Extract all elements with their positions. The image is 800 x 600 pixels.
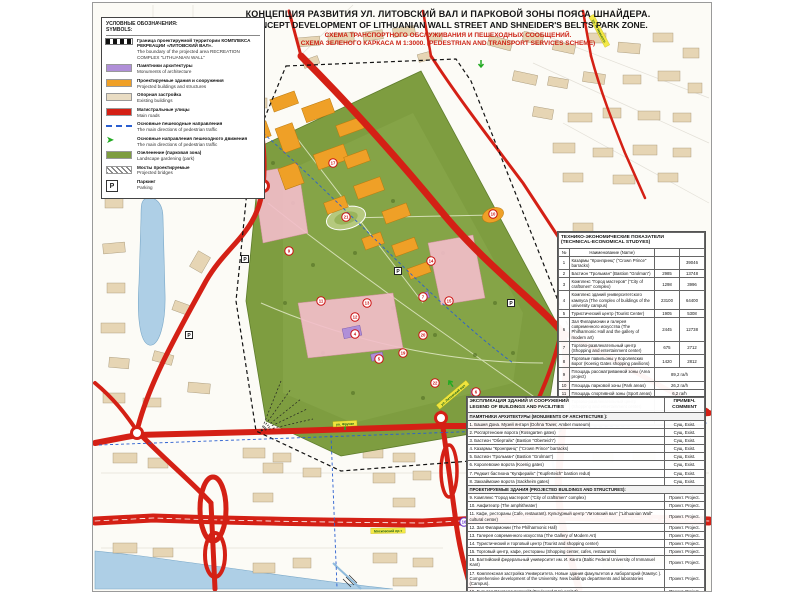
exp-table-row: 10. Амфитеатр (The amphitheater)Проект. … [468,502,705,510]
planning-poster: PPPP ул. Фрунзеул. Литовский валул. А. Н… [0,0,800,600]
exp-table-row: 13. Галерея современного искусства (The … [468,531,705,539]
tech-table-row: 7Торгово-развлекательный центр (Shopping… [559,341,705,354]
legend-header-ru: УСЛОВНЫЕ ОБОЗНАЧЕНИЯ: [106,21,178,27]
exp-table-row: 4. Казармы "Кронпринц" ("Crown Prince" b… [468,445,705,453]
exp-table-row: 17. Комплексная застройка Университета. … [468,569,705,587]
tech-table-row: 5Туристический центр (Tourist Center)190… [559,309,705,317]
legend-item: Мосты проектируемыеProjected bridges [106,165,260,176]
building [109,357,130,369]
legend-swatch-hatch-icon [106,166,132,174]
svg-text:12: 12 [353,315,358,320]
exp-table-row: 19. Бульвар "Университетский" (Boulevard… [468,588,705,592]
svg-text:22: 22 [433,381,438,386]
legend-item-label: Граница проектируемой территории КОМПЛЕК… [137,38,260,61]
tech-table-row: 3Комплекс "Город мастеров" ("City of cra… [559,278,705,291]
building [623,75,641,84]
building [683,48,699,58]
legend-box: УСЛОВНЫЕ ОБОЗНАЧЕНИЯ: SYMBOLS: Граница п… [101,17,265,199]
legend-item-label: ПаркингParking [137,179,155,190]
legend-item: ➤Основные направления пешеходного движен… [106,136,260,147]
exp-table-row: 8. Закхаймские ворота (Sackheim gates)Су… [468,477,705,485]
map-marker: 10 [489,210,497,218]
building [638,111,660,120]
legend-items: Граница проектируемой территории КОМПЛЕК… [106,38,260,193]
exp-table-title: ЭКСПЛИКАЦИЯ ЗДАНИЙ И СООРУЖЕНИЙLEGEND OF… [468,398,665,413]
parking-icon: P [508,300,515,308]
map-marker: 6 [472,388,480,396]
exp-section-row: ПАМЯТНИКИ АРХИТЕКТУРЫ (MONUMENTS OF ARCH… [468,412,705,420]
tech-table-row: 2Бастион "Грольман" (Bastion "Grolman")2… [559,269,705,277]
svg-text:14: 14 [429,259,434,264]
exp-table-row: 5. Бастион "Грольман" (Bastion "Grolman"… [468,453,705,461]
exp-table-row: 14. Туристический и торговый центр (Tour… [468,540,705,548]
subtitle-ru: СХЕМА ТРАНСПОРТНОГО ОБСЛУЖИВАНИЯ И ПЕШЕХ… [233,32,663,39]
building [673,148,691,157]
map-marker: 13 [363,299,371,307]
svg-text:11: 11 [319,299,324,304]
building [633,145,657,155]
map-marker: 9 [285,247,293,255]
exp-section-row: ПРОЕКТИРУЕМЫЕ ЗДАНИЯ (PROJECTED BUILDING… [468,485,705,493]
legend-item-label: Основные направления пешеходного движени… [137,136,247,147]
exp-table-row: 15. Торговый центр, кафе, рестораны (Sho… [468,548,705,556]
building [688,83,702,93]
legend-item: Магистральные улицыMain roads [106,107,260,118]
exp-table-row: 6. Королевские ворота (Koenig gates)Сущ.… [468,461,705,469]
legend-swatch-color-icon [106,151,132,159]
exp-table-row: 3. Бастион "Обертайх" (Bastion "Oberteic… [468,436,705,444]
exp-table-row: 11. Кафе, рестораны (Cafe, restaurant). … [468,510,705,523]
tech-table-row: 6Зал Филармонии и галерея современного и… [559,318,705,342]
building [303,468,321,477]
building [153,548,173,557]
legend-item-label: Памятники архитектурыMonuments of archit… [137,63,193,74]
building [393,453,415,462]
exp-table-header: ЭКСПЛИКАЦИЯ ЗДАНИЙ И СООРУЖЕНИЙLEGEND OF… [468,398,705,413]
parking-icon: P [186,332,193,340]
map-marker: 19 [399,349,407,357]
exp-table-row: 12. Зал Филармонии (The Philharmonic Hal… [468,523,705,531]
legend-swatch-color-icon [106,108,132,116]
svg-text:21: 21 [344,215,349,220]
building [107,283,125,293]
legend-swatch-parking-icon: P [106,180,118,192]
building [373,473,395,483]
building [103,242,126,254]
building [393,578,417,586]
street-label: ул. Фрунзе [333,420,357,427]
svg-text:19: 19 [401,351,406,356]
exp-table-row: 16. Балтийский федеральный университет и… [468,556,705,569]
legend-item-label: Проектируемые здания и сооруженияProject… [137,78,224,89]
map-marker: 17 [329,159,337,167]
tech-table-header: № Наименование (Name) [559,248,705,256]
legend-item: Опорная застройкаExisting buildings [106,92,260,103]
legend-swatch-arrow-icon: ➤ [106,137,132,145]
parking-icon: P [242,256,249,264]
tech-table-row: 10Площадь парковой зоны (Park areas)26,2… [559,381,705,389]
svg-text:10: 10 [491,212,496,217]
building [113,453,137,463]
exp-table-row: 7. Редюит бастиона "Купферайх" ("Kupfert… [468,469,705,477]
svg-text:20: 20 [421,333,426,338]
building [243,448,265,458]
legend-item: Основные пешеходные направленияThe main … [106,121,260,132]
parking-icon: P [395,268,402,276]
legend-swatch-bluedash-icon [106,125,132,127]
map-marker: 14 [427,257,435,265]
map-marker: 22 [431,379,439,387]
building [253,493,273,502]
legend-swatch-color-icon [106,93,132,101]
map-marker: 15 [445,297,453,305]
building [563,173,583,182]
lake [138,198,165,345]
legend-item: Памятники архитектурыMonuments of archit… [106,63,260,74]
legend-swatch-color-icon [106,64,132,72]
building [373,553,397,563]
legend-item: Проектируемые здания и сооруженияProject… [106,78,260,89]
building [101,323,125,333]
legend-swatch-color-icon [106,79,132,87]
title-en: CONCEPT DEVELOPMENT OF LITHUANIAN WALL S… [233,20,663,30]
legend-swatch-boundary-icon [106,39,132,44]
title-ru: КОНЦЕПЦИЯ РАЗВИТИЯ УЛ. ЛИТОВСКИЙ ВАЛ И П… [233,9,663,19]
building [553,143,575,153]
building [105,198,123,208]
building [413,558,433,567]
legend-item: PПаркингParking [106,179,260,192]
map-marker: 4 [351,330,359,338]
map-marker: 21 [342,213,350,221]
legend-item-label: Основные пешеходные направленияThe main … [137,121,222,132]
building [263,463,283,473]
map-marker: 20 [419,331,427,339]
tech-table-row: 1Казармы "Кронпринц" ("Crown Prince" bar… [559,256,705,269]
map-marker: 7 [419,293,427,301]
street-label: Московский пр-т [371,528,406,534]
tech-table-row: 8Торговые павильоны у Королевских ворот … [559,355,705,368]
exp-table-row: 1. Башня Дона. Музей янтаря (Dohna Tower… [468,420,705,428]
tech-table-row: 9Площадь рассматриваемой зоны (Area proj… [559,368,705,381]
legend-header: УСЛОВНЫЕ ОБОЗНАЧЕНИЯ: SYMBOLS: [106,21,260,36]
building [188,382,211,394]
building [593,148,613,157]
map-marker: 12 [351,313,359,321]
svg-text:15: 15 [447,299,452,304]
tech-table-title: ТЕХНИКО-ЭКОНОМИЧЕСКИЕ ПОКАЗАТЕЛИ(TECHNIC… [559,233,705,249]
exp-table-row: 2. Росгартенские ворота (Rossgarten gate… [468,428,705,436]
legend-item-label: Опорная застройкаExisting buildings [137,92,181,103]
building [273,453,291,462]
buildings-legend-table: ЭКСПЛИКАЦИЯ ЗДАНИЙ И СООРУЖЕНИЙLEGEND OF… [466,396,706,592]
building [253,563,275,573]
building [613,175,635,184]
svg-text:Московский пр-т: Московский пр-т [374,529,402,533]
legend-item-label: Магистральные улицыMain roads [137,107,190,118]
exp-comment-col: ПРИМЕЧ. COMMENT [665,398,705,413]
building [658,173,678,182]
legend-item: Озеленение (парковая зона)Landscape gard… [106,150,260,161]
svg-text:17: 17 [331,161,336,166]
svg-text:13: 13 [365,301,370,306]
map-marker: 5 [375,355,383,363]
tech-table-row: 4Комплекс зданий университетского кампус… [559,291,705,309]
building [658,71,680,81]
drawing-sheet: PPPP ул. Фрунзеул. Литовский валул. А. Н… [92,2,712,592]
building [113,543,137,553]
legend-item: Граница проектируемой территории КОМПЛЕК… [106,38,260,61]
legend-header-en: SYMBOLS: [106,27,132,33]
map-marker: 11 [317,297,325,305]
title-block: КОНЦЕПЦИЯ РАЗВИТИЯ УЛ. ЛИТОВСКИЙ ВАЛ И П… [233,9,663,47]
building [568,113,592,122]
subtitle-scale: СХЕМА ЗЕЛЕНОГО КАРКАСА М 1:3000. (PEDEST… [233,40,663,47]
building [393,498,415,507]
legend-item-label: Озеленение (парковая зона)Landscape gard… [137,150,201,161]
building [413,471,431,480]
legend-item-label: Мосты проектируемыеProjected bridges [137,165,190,176]
exp-table-row: 9. Комплекс "Город мастеров" ("City of c… [468,494,705,502]
building [673,113,691,122]
building [293,558,311,568]
